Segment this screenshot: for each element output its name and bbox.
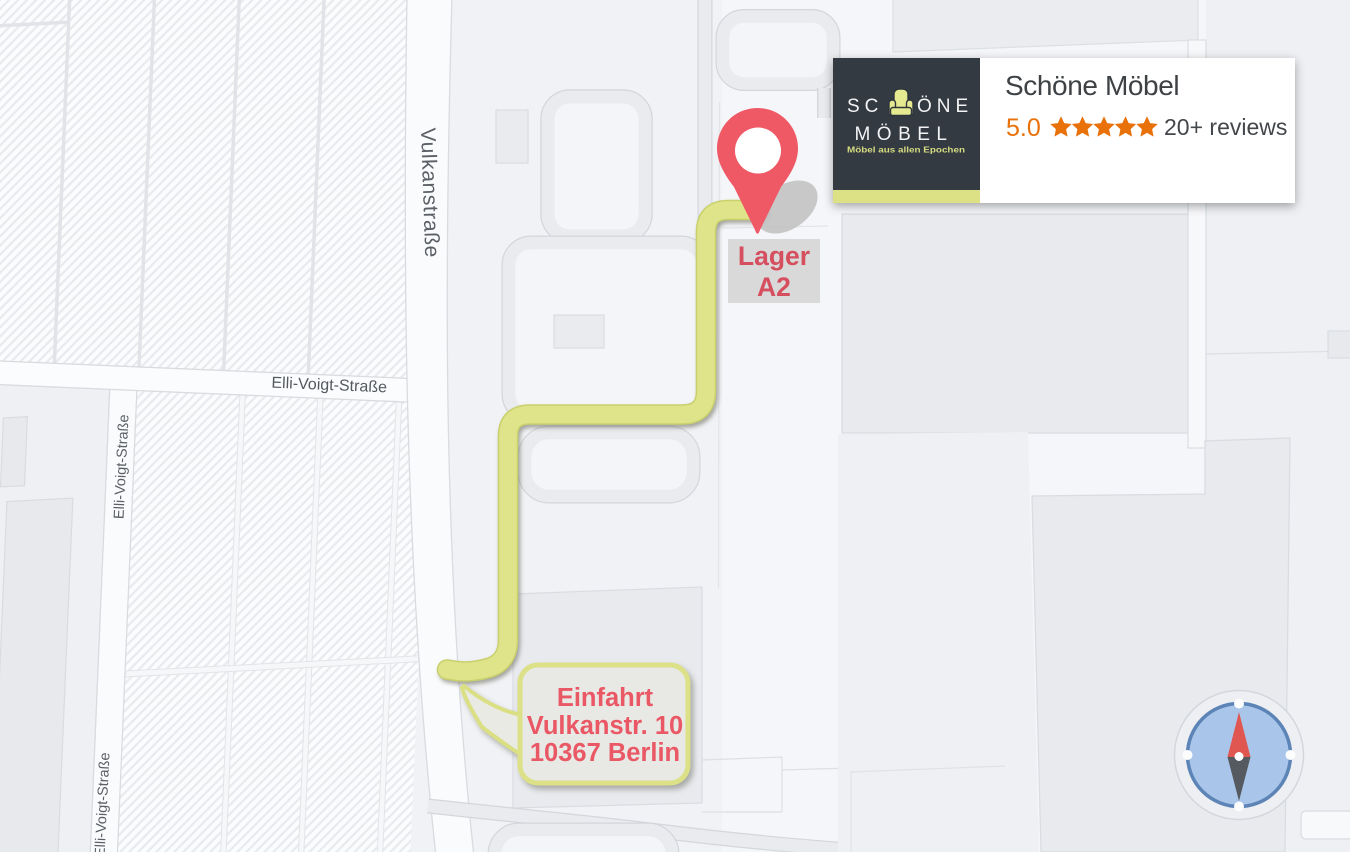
svg-text:SC: SC [847,96,883,117]
svg-text:Einfahrt: Einfahrt [557,684,654,712]
svg-text:20+ reviews: 20+ reviews [1164,114,1287,140]
svg-text:Lager: Lager [738,241,810,271]
svg-text:A2: A2 [757,272,791,302]
svg-text:Möbel aus allen Epochen: Möbel aus allen Epochen [847,146,965,155]
svg-text:Vulkanstraße: Vulkanstraße [416,127,443,258]
svg-text:ÖNE: ÖNE [917,96,973,117]
svg-text:10367 Berlin: 10367 Berlin [530,739,680,767]
svg-text:Vulkanstr. 10: Vulkanstr. 10 [527,712,683,740]
svg-text:MÖBEL: MÖBEL [854,124,953,145]
svg-text:5.0: 5.0 [1006,114,1041,142]
svg-text:Schöne Möbel: Schöne Möbel [1005,70,1179,101]
